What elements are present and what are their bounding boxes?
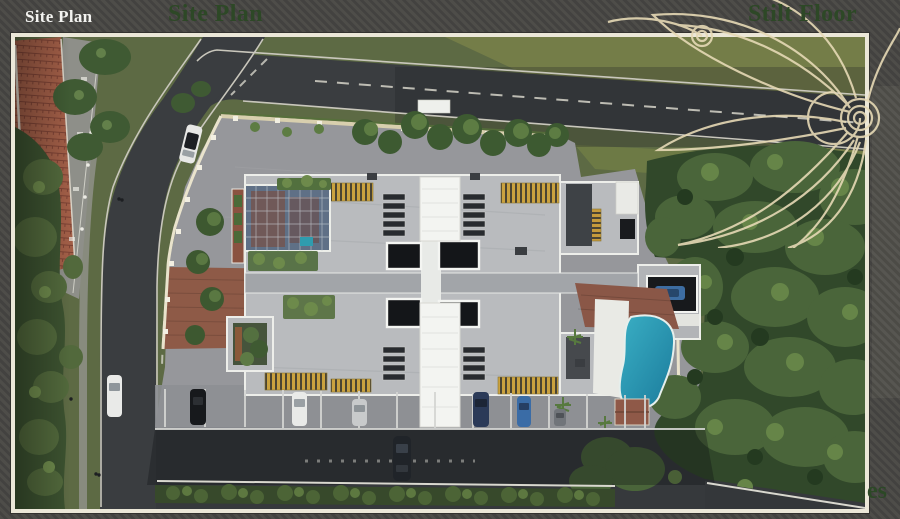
garden-courtyard xyxy=(227,317,273,371)
page-label: Site Plan xyxy=(25,7,92,27)
right-margin-strip xyxy=(872,86,900,398)
site-plan-photo-frame xyxy=(11,33,869,513)
building-shadow xyxy=(147,429,715,485)
next-slide-title[interactable]: Stilt Floor xyxy=(748,1,857,28)
current-slide-title[interactable]: Site Plan xyxy=(168,1,263,28)
page: Site Plan Site Plan Stilt Floor es xyxy=(0,0,900,519)
clipped-caption-fragment: es xyxy=(867,478,887,505)
site-plan-render xyxy=(15,37,865,509)
vignette xyxy=(15,37,70,509)
